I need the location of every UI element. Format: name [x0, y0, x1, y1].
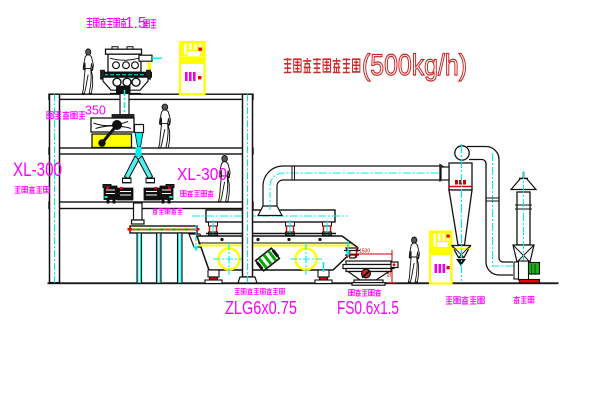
svg-text:FS0.6x1.5: FS0.6x1.5 — [337, 298, 399, 318]
svg-text:350: 350 — [85, 104, 106, 118]
svg-text:XL-300: XL-300 — [177, 164, 227, 184]
svg-text:1500: 1500 — [359, 249, 370, 255]
svg-text:ZLG6x0.75: ZLG6x0.75 — [225, 298, 297, 318]
svg-text:(500kg/h): (500kg/h) — [362, 49, 467, 82]
svg-text:XL-300: XL-300 — [13, 160, 62, 181]
